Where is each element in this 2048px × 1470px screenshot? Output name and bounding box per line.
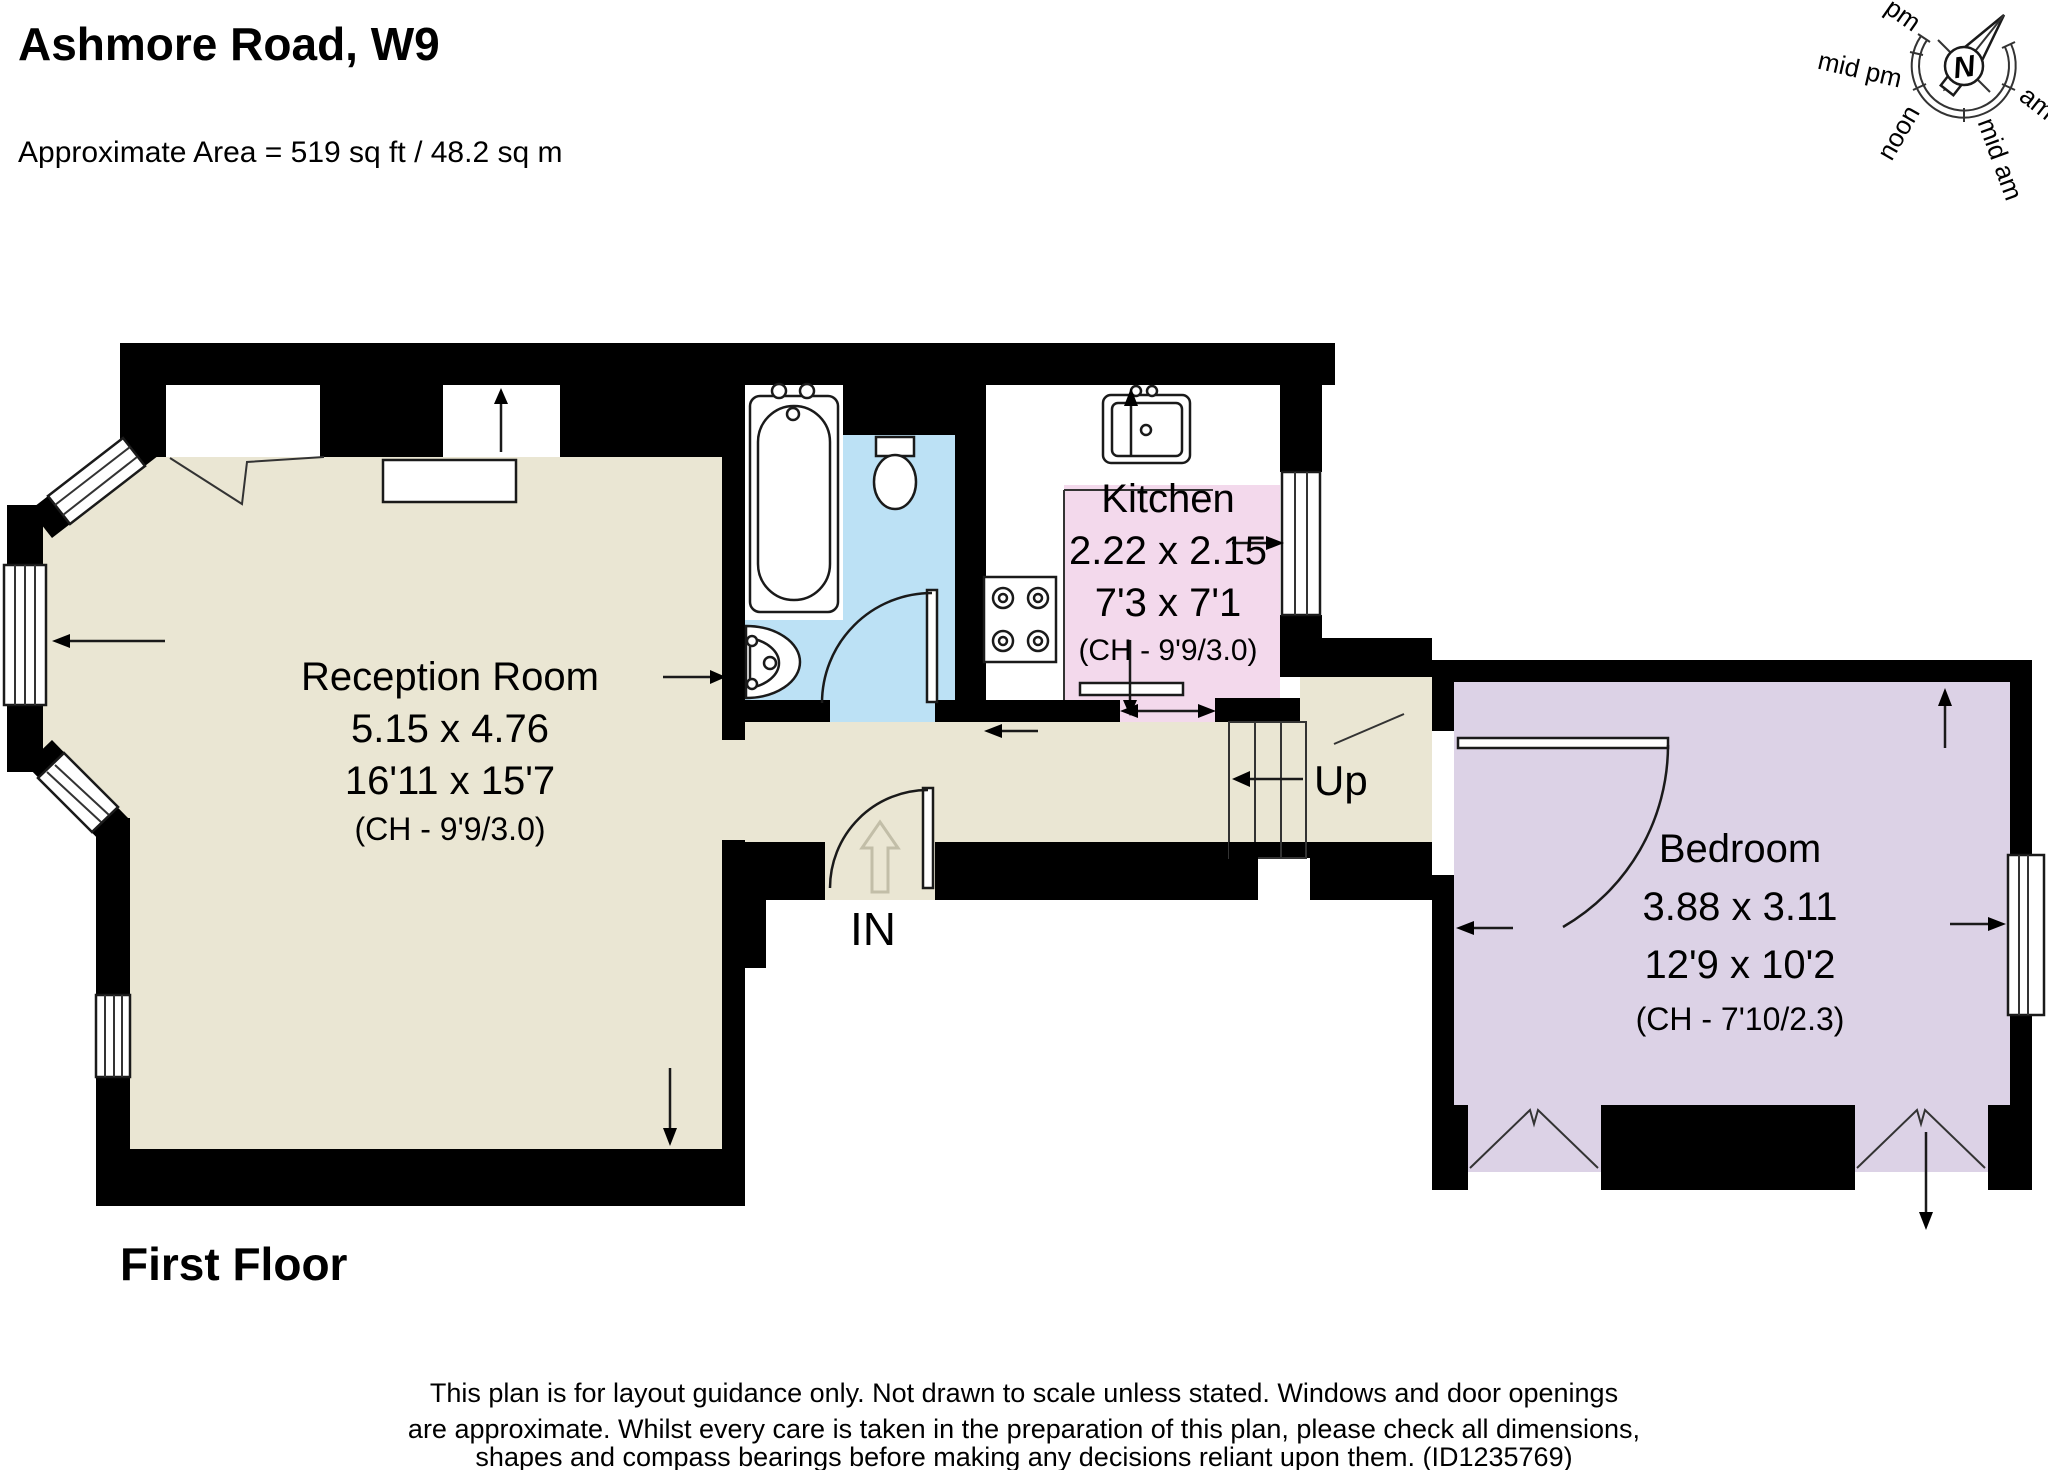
compass-pm: pm xyxy=(1880,0,1927,37)
svg-text:are approximate. Whilst every: are approximate. Whilst every care is ta… xyxy=(408,1414,1640,1444)
room-floors xyxy=(28,385,2010,1180)
kitchen-right-wall-top xyxy=(1280,385,1322,472)
left-lower-window xyxy=(96,995,130,1077)
chimney-alcove-recess xyxy=(166,385,320,457)
svg-text:This plan is for layout guidan: This plan is for layout guidance only. N… xyxy=(430,1378,1618,1408)
kitchen-sink xyxy=(1103,386,1190,463)
floorplan-canvas: Ashmore Road, W9 Approximate Area = 519 … xyxy=(0,0,2048,1470)
nook-top-wall xyxy=(1300,638,1432,677)
hall-bottom-wall-left xyxy=(722,842,825,900)
kitchen-window xyxy=(1282,472,1320,615)
floorplan-page: Ashmore Road, W9 Approximate Area = 519 … xyxy=(0,0,2048,1470)
bedroom-left-wall-upper xyxy=(1432,660,1454,731)
bath-top-infill xyxy=(843,385,986,435)
hearth xyxy=(383,460,516,502)
svg-text:3.88 x 3.11: 3.88 x 3.11 xyxy=(1643,885,1838,929)
reception-bottom-wall xyxy=(96,1149,745,1206)
bedroom-alcove-left xyxy=(1468,1105,1601,1172)
svg-text:Kitchen: Kitchen xyxy=(1101,477,1234,521)
north-wall xyxy=(745,343,1335,385)
svg-text:16'11 x 15'7: 16'11 x 15'7 xyxy=(345,759,555,803)
bedroom-alcove-right xyxy=(1855,1105,1988,1172)
exterior-step xyxy=(745,900,766,968)
bathtub xyxy=(750,384,838,612)
toilet xyxy=(874,437,916,509)
bathroom-door-gap xyxy=(830,700,935,722)
reception-right-wall-upper xyxy=(722,457,745,740)
bedroom-alcove-right-exterior xyxy=(1855,1172,1988,1190)
bedroom-window xyxy=(2008,855,2044,1015)
hall-bottom-wall-right xyxy=(935,842,1432,900)
svg-text:(CH - 7'10/2.3): (CH - 7'10/2.3) xyxy=(1636,1001,1845,1037)
hall-top-wall-stairs xyxy=(1215,698,1300,722)
svg-text:Bedroom: Bedroom xyxy=(1659,827,1821,871)
bay-window-middle xyxy=(4,565,46,705)
svg-text:(CH - 9'9/3.0): (CH - 9'9/3.0) xyxy=(354,811,545,847)
stair-landing-nook xyxy=(1300,677,1432,722)
svg-text:(CH - 9'9/3.0): (CH - 9'9/3.0) xyxy=(1078,634,1257,667)
compass-noon: noon xyxy=(1871,100,1926,165)
bedroom-top-wall xyxy=(1432,660,2032,682)
compass-mid-pm: mid pm xyxy=(1815,45,1905,93)
bath-bottom-wall xyxy=(722,700,830,722)
floor-label: First Floor xyxy=(120,1238,348,1290)
bedroom-left-wall-lower xyxy=(1432,875,1454,1115)
svg-text:shapes and compass bearings be: shapes and compass bearings before makin… xyxy=(475,1442,1572,1470)
compass-mid-am: mid am xyxy=(1972,114,2029,204)
approx-area: Approximate Area = 519 sq ft / 48.2 sq m xyxy=(18,136,562,169)
svg-text:7'3 x 7'1: 7'3 x 7'1 xyxy=(1095,581,1241,625)
up-label: Up xyxy=(1314,757,1368,804)
svg-text:2.22 x 2.15: 2.22 x 2.15 xyxy=(1069,529,1267,573)
page-title: Ashmore Road, W9 xyxy=(18,18,440,70)
svg-text:5.15 x 4.76: 5.15 x 4.76 xyxy=(351,707,549,751)
hob xyxy=(984,577,1056,662)
bath-kitchen-wall xyxy=(955,435,986,700)
stair-well-notch xyxy=(1258,858,1310,900)
compass: N pm mid pm noon mid am am xyxy=(1815,0,2048,204)
stair-stub xyxy=(1229,842,1258,864)
reception-room-floor xyxy=(28,438,740,1180)
svg-text:12'9 x 10'2: 12'9 x 10'2 xyxy=(1645,943,1836,987)
bedroom-alcove-left-exterior xyxy=(1468,1172,1601,1190)
disclaimer: This plan is for layout guidance only. N… xyxy=(408,1378,1640,1470)
in-label: IN xyxy=(850,903,896,955)
compass-am: am xyxy=(2014,80,2048,126)
kitchen-bottom-wall xyxy=(935,700,1120,722)
svg-text:Reception Room: Reception Room xyxy=(301,655,599,699)
